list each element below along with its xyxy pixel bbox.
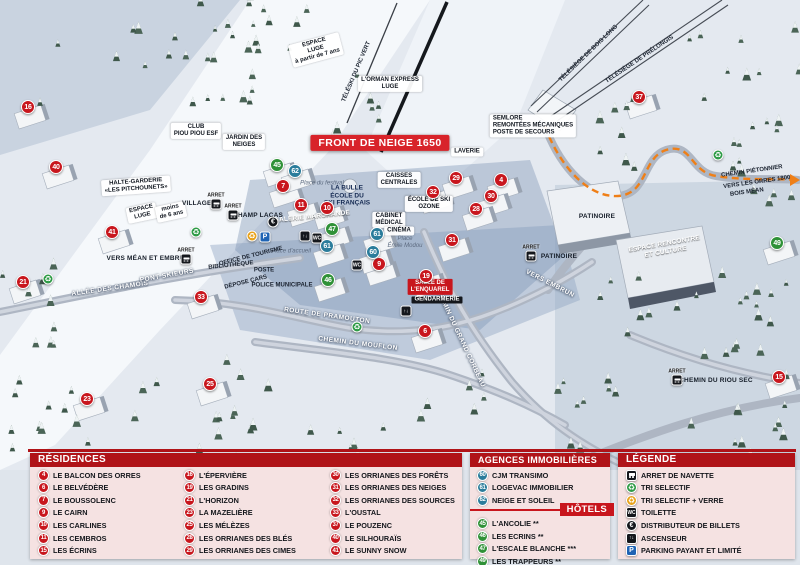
panel-legende: LÉGENDE ARRET DE NAVETTE♻TRI SELECTIF♻TR… bbox=[618, 453, 795, 559]
residence-item-7-label: LE BOUSSOLENC bbox=[53, 496, 116, 505]
panel-legende-title: LÉGENDE bbox=[618, 453, 795, 467]
legend-top-rule bbox=[28, 449, 796, 452]
agence-item-61-label: LOGEVAC IMMOBILIER bbox=[492, 483, 573, 492]
residence-item-40-label: LE SILHOURAÏS bbox=[345, 534, 401, 543]
residence-item-23-label: LA MAZELIÈRE bbox=[199, 508, 253, 517]
legend-marker-49: 49 bbox=[477, 556, 488, 565]
residence-item-9-label: LE CAIRN bbox=[53, 508, 87, 517]
legend-marker-10: 10 bbox=[38, 520, 49, 531]
residence-item-25: 25LES MÉLÈZES bbox=[184, 519, 250, 531]
residence-item-33-label: L'OUSTAL bbox=[345, 508, 381, 517]
legend-marker-61: 61 bbox=[477, 482, 488, 493]
residence-item-37-label: LE POUZENC bbox=[345, 521, 392, 530]
residence-item-23: 23LA MAZELIÈRE bbox=[184, 507, 253, 519]
hotel-item-49: 49LES TRAPPEURS ** bbox=[477, 555, 561, 565]
panel-residences-title: RÉSIDENCES bbox=[30, 453, 462, 467]
legende-item-ascenseur-label: ASCENSEUR bbox=[641, 534, 687, 543]
residence-item-28: 28LES ORRIANES DES BLÉS bbox=[184, 532, 292, 544]
esf-bubble-building bbox=[343, 179, 357, 193]
legend-marker-32: 32 bbox=[330, 495, 341, 506]
residence-item-16-label: L'ÉPERVIÈRE bbox=[199, 471, 247, 480]
hotel-item-45: 45L'ANCOLIE ** bbox=[477, 518, 539, 530]
legend-marker-19: 19 bbox=[184, 482, 195, 493]
residence-item-19-label: LES GRADINS bbox=[199, 483, 249, 492]
legende-item-tri-selectif-verre-label: TRI SELECTIF + VERRE bbox=[641, 496, 724, 505]
panel-agences-title: AGENCES IMMOBILIÈRES bbox=[470, 453, 610, 467]
ski-resort-map: FRONT DE NEIGE 1650L'ORMAN EXPRESS LUGEE… bbox=[0, 0, 800, 565]
residence-item-15-label: LES ÉCRINS bbox=[53, 546, 97, 555]
residence-item-41-label: LE SUNNY SNOW bbox=[345, 546, 407, 555]
legend-marker-23: 23 bbox=[184, 507, 195, 518]
residence-item-32: 32LES ORRIANES DES SOURCES bbox=[330, 494, 455, 506]
legende-item-tri-selectif: ♻TRI SELECTIF bbox=[626, 482, 690, 494]
legend-marker-47: 47 bbox=[477, 543, 488, 554]
legend-marker-33: 33 bbox=[330, 507, 341, 518]
residence-item-30-label: LES ORRIANES DES FORÊTS bbox=[345, 471, 448, 480]
agence-item-62-label: NEIGE ET SOLEIL bbox=[492, 496, 554, 505]
legend-marker-41: 41 bbox=[330, 545, 341, 556]
residence-item-6-label: LE BELVÉDÈRE bbox=[53, 483, 108, 492]
legend-marker-60: 60 bbox=[477, 470, 488, 481]
residence-item-7: 7LE BOUSSOLENC bbox=[38, 494, 116, 506]
legend-marker-7: 7 bbox=[38, 495, 49, 506]
legend-marker-62: 62 bbox=[477, 495, 488, 506]
residence-item-30: 30LES ORRIANES DES FORÊTS bbox=[330, 469, 448, 481]
elevator-icon: ↑↓ bbox=[626, 533, 637, 544]
residence-item-21-label: L'HORIZON bbox=[199, 496, 239, 505]
atm-euro-icon: € bbox=[626, 520, 637, 531]
residence-item-33: 33L'OUSTAL bbox=[330, 507, 381, 519]
hotel-item-45-label: L'ANCOLIE ** bbox=[492, 519, 539, 528]
legende-item-distributeur-de-billets: €DISTRIBUTEUR DE BILLETS bbox=[626, 519, 740, 531]
legend-marker-15: 15 bbox=[38, 545, 49, 556]
agence-item-62: 62NEIGE ET SOLEIL bbox=[477, 494, 554, 506]
legend-marker-4: 4 bbox=[38, 470, 49, 481]
legend-marker-30: 30 bbox=[330, 470, 341, 481]
hotel-item-47: 47L'ESCALE BLANCHE *** bbox=[477, 543, 576, 555]
legend-marker-29: 29 bbox=[184, 545, 195, 556]
legende-item-distributeur-de-billets-label: DISTRIBUTEUR DE BILLETS bbox=[641, 521, 740, 530]
panel-residences: RÉSIDENCES 4LE BALCON DES ORRES6LE BELVÉ… bbox=[30, 453, 462, 559]
legend-marker-40: 40 bbox=[330, 533, 341, 544]
legende-item-tri-selectif-verre: ♻TRI SELECTIF + VERRE bbox=[626, 494, 724, 506]
agence-item-61: 61LOGEVAC IMMOBILIER bbox=[477, 482, 573, 494]
agence-item-60-label: CJM TRANSIMO bbox=[492, 471, 548, 480]
hotel-item-47-label: L'ESCALE BLANCHE *** bbox=[492, 544, 576, 553]
hotel-item-49-label: LES TRAPPEURS ** bbox=[492, 557, 561, 565]
toilet-icon: WC bbox=[626, 507, 637, 518]
legende-item-ascenseur: ↑↓ASCENSEUR bbox=[626, 532, 687, 544]
residence-item-21: 21L'HORIZON bbox=[184, 494, 239, 506]
recycle-glass-icon: ♻ bbox=[626, 495, 637, 506]
legende-item-toilette: WCTOILETTE bbox=[626, 507, 676, 519]
residence-item-11-label: LES CEMBROS bbox=[53, 534, 107, 543]
residence-item-31-label: LES ORRIANES DES NEIGES bbox=[345, 483, 446, 492]
legend-marker-31: 31 bbox=[330, 482, 341, 493]
legend-marker-28: 28 bbox=[184, 533, 195, 544]
recycle-icon: ♻ bbox=[626, 482, 637, 493]
residence-item-15: 15LES ÉCRINS bbox=[38, 545, 97, 557]
legende-item-arret-de-navette-label: ARRET DE NAVETTE bbox=[641, 471, 714, 480]
residence-item-29-label: LES ORRIANES DES CIMES bbox=[199, 546, 296, 555]
residence-item-4-label: LE BALCON DES ORRES bbox=[53, 471, 141, 480]
residence-item-10-label: LES CARLINES bbox=[53, 521, 107, 530]
legend-marker-46: 46 bbox=[477, 531, 488, 542]
residence-item-29: 29LES ORRIANES DES CIMES bbox=[184, 545, 296, 557]
residence-item-32-label: LES ORRIANES DES SOURCES bbox=[345, 496, 455, 505]
legend-marker-16: 16 bbox=[184, 470, 195, 481]
legend-marker-9: 9 bbox=[38, 507, 49, 518]
residence-item-41: 41LE SUNNY SNOW bbox=[330, 545, 407, 557]
legend-marker-25: 25 bbox=[184, 520, 195, 531]
residence-item-4: 4LE BALCON DES ORRES bbox=[38, 469, 141, 481]
panel-hotels-title: HÔTELS bbox=[560, 503, 614, 516]
legend-marker-21: 21 bbox=[184, 495, 195, 506]
residence-item-16: 16L'ÉPERVIÈRE bbox=[184, 469, 247, 481]
residence-item-28-label: LES ORRIANES DES BLÉS bbox=[199, 534, 292, 543]
legende-item-arret-de-navette: ARRET DE NAVETTE bbox=[626, 469, 714, 481]
residence-item-11: 11LES CEMBROS bbox=[38, 532, 107, 544]
hotel-item-46: 46LES ECRINS ** bbox=[477, 530, 544, 542]
legende-item-toilette-label: TOILETTE bbox=[641, 508, 676, 517]
agence-item-60: 60CJM TRANSIMO bbox=[477, 469, 548, 481]
bus-stop-icon bbox=[626, 470, 637, 481]
legend-marker-6: 6 bbox=[38, 482, 49, 493]
legende-item-tri-selectif-label: TRI SELECTIF bbox=[641, 483, 690, 492]
panel-agences: AGENCES IMMOBILIÈRES HÔTELS 60CJM TRANSI… bbox=[470, 453, 610, 559]
legend-marker-37: 37 bbox=[330, 520, 341, 531]
residence-item-19: 19LES GRADINS bbox=[184, 482, 249, 494]
residence-item-31: 31LES ORRIANES DES NEIGES bbox=[330, 482, 446, 494]
parking-icon: P bbox=[626, 545, 637, 556]
legende-item-parking-payant-et-limit: PPARKING PAYANT ET LIMITÉ bbox=[626, 545, 742, 557]
hotel-item-46-label: LES ECRINS ** bbox=[492, 532, 544, 541]
residence-item-9: 9LE CAIRN bbox=[38, 507, 87, 519]
legend-marker-45: 45 bbox=[477, 518, 488, 529]
residence-item-6: 6LE BELVÉDÈRE bbox=[38, 482, 108, 494]
residence-item-10: 10LES CARLINES bbox=[38, 519, 107, 531]
residence-item-40: 40LE SILHOURAÏS bbox=[330, 532, 401, 544]
residence-item-37: 37LE POUZENC bbox=[330, 519, 392, 531]
legende-item-parking-payant-et-limit-label: PARKING PAYANT ET LIMITÉ bbox=[641, 546, 742, 555]
legend-marker-11: 11 bbox=[38, 533, 49, 544]
residence-item-25-label: LES MÉLÈZES bbox=[199, 521, 250, 530]
